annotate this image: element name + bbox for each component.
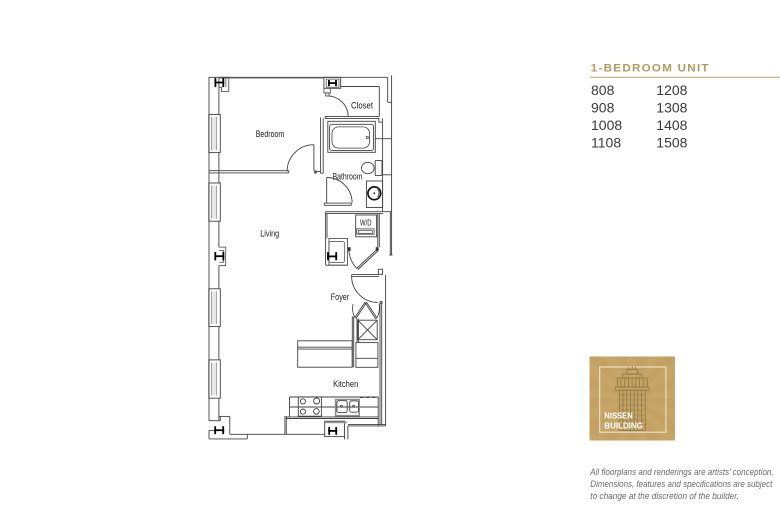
- svg-text:Dimensions, features and speci: Dimensions, features and specifications …: [590, 479, 772, 489]
- svg-text:908: 908: [591, 100, 615, 116]
- svg-text:to change at the discretion of: to change at the discretion of the build…: [590, 491, 739, 501]
- svg-text:1508: 1508: [656, 135, 687, 151]
- svg-text:1108: 1108: [591, 135, 621, 151]
- svg-text:1208: 1208: [656, 82, 687, 98]
- svg-text:Kitchen: Kitchen: [333, 379, 358, 389]
- svg-text:Bedroom: Bedroom: [256, 129, 285, 139]
- svg-text:808: 808: [591, 82, 615, 98]
- svg-text:Closet: Closet: [351, 100, 373, 110]
- svg-text:NISSEN: NISSEN: [604, 411, 633, 421]
- svg-text:All floorplans and renderings: All floorplans and renderings are artist…: [589, 467, 773, 477]
- svg-text:BUILDING: BUILDING: [604, 421, 643, 431]
- svg-text:1008: 1008: [591, 117, 622, 133]
- svg-text:W/D: W/D: [360, 218, 372, 227]
- svg-text:1408: 1408: [656, 117, 687, 133]
- svg-text:Living: Living: [260, 228, 279, 238]
- svg-text:Foyer: Foyer: [331, 292, 350, 302]
- svg-text:1308: 1308: [656, 100, 687, 116]
- svg-text:1-BEDROOM UNIT: 1-BEDROOM UNIT: [591, 63, 710, 75]
